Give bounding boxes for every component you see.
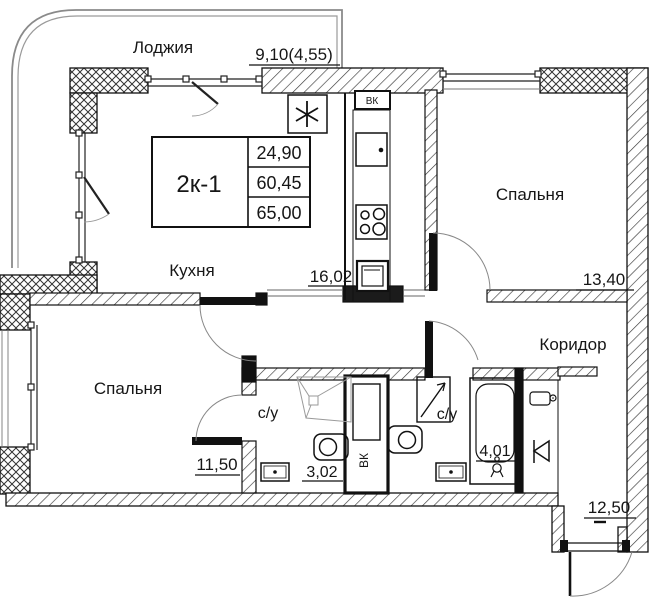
electric-panel-icon — [530, 392, 556, 405]
wall-right — [627, 68, 648, 552]
label-bath2: с/у — [437, 406, 457, 423]
fridge — [288, 95, 327, 133]
wall-bath-top-a — [242, 368, 425, 380]
wall-top-middle — [262, 68, 443, 93]
window-kitchen-left — [76, 130, 109, 263]
toilet-2 — [388, 426, 422, 453]
wall-bedroom2-bottom — [487, 290, 627, 302]
area-bedroom2: 13,40 — [583, 270, 626, 289]
area-corridor: 12,50 — [588, 498, 631, 517]
wall-bath-niche — [515, 368, 523, 493]
door-bedroom2 — [429, 233, 490, 291]
wall-top-left-pier — [70, 68, 148, 93]
summary-table: 2к-1 24,90 60,45 65,00 — [152, 137, 310, 227]
wall-beam-corridor — [558, 367, 597, 376]
wall-far-left-pier-bottom — [0, 447, 30, 494]
wall-kitchen-bedroom1 — [30, 293, 200, 305]
shower-tray — [297, 377, 351, 422]
label-corridor: Коридор — [539, 335, 606, 354]
area-living-value: 24,90 — [256, 143, 301, 163]
bathtub — [470, 378, 520, 484]
area-bath1: 3,02 — [306, 464, 337, 481]
window-loggia-top — [145, 76, 262, 116]
area-loggia: 9,10(4,55) — [255, 45, 333, 64]
label-bedroom2: Спальня — [496, 185, 564, 204]
label-kitchen: Кухня — [169, 261, 215, 280]
area-total-value: 65,00 — [256, 203, 301, 223]
label-loggia: Лоджия — [133, 38, 193, 57]
kitchen-sink — [356, 133, 387, 166]
window-bedroom1 — [2, 322, 37, 450]
interior-walls — [30, 90, 627, 493]
wall-divider-upper — [242, 382, 256, 395]
area-kitchen: 16,02 — [310, 267, 353, 286]
vent-box-label: ВК — [366, 96, 379, 107]
washbasin-2 — [436, 463, 466, 481]
unit-name: 2к-1 — [176, 171, 221, 198]
label-bedroom1: Спальня — [94, 379, 162, 398]
door-bath1 — [192, 395, 242, 445]
window-bedroom2 — [440, 71, 541, 89]
toilet-1 — [314, 434, 348, 460]
bath2-fixtures — [388, 377, 520, 484]
area-bath2: 4,01 — [479, 443, 510, 460]
area-bedroom1: 11,50 — [196, 455, 237, 474]
wall-jamb — [256, 293, 267, 305]
corridor-niche — [523, 380, 558, 493]
wall-kitchen-left-pier-top — [70, 93, 97, 133]
label-bath1: с/у — [258, 405, 278, 422]
wall-kitchen-bottom-band — [0, 275, 97, 294]
floor-plan-drawing: ВК — [0, 0, 650, 600]
kitchen-oven — [357, 261, 388, 291]
washbasin-1 — [261, 463, 289, 481]
floor-plan: ВК — [0, 0, 650, 600]
wall-divider-lower — [242, 441, 256, 493]
wall-bottom — [6, 493, 558, 506]
door-bedroom1 — [200, 297, 256, 361]
door-bath2 — [425, 321, 478, 378]
kitchen-stove — [356, 205, 387, 239]
area-apartment-value: 60,45 — [256, 173, 301, 193]
hanger-hook-icon — [534, 440, 549, 463]
wall-far-left-pier-top — [0, 294, 30, 330]
vent-shaft-label: ВК — [357, 453, 371, 468]
